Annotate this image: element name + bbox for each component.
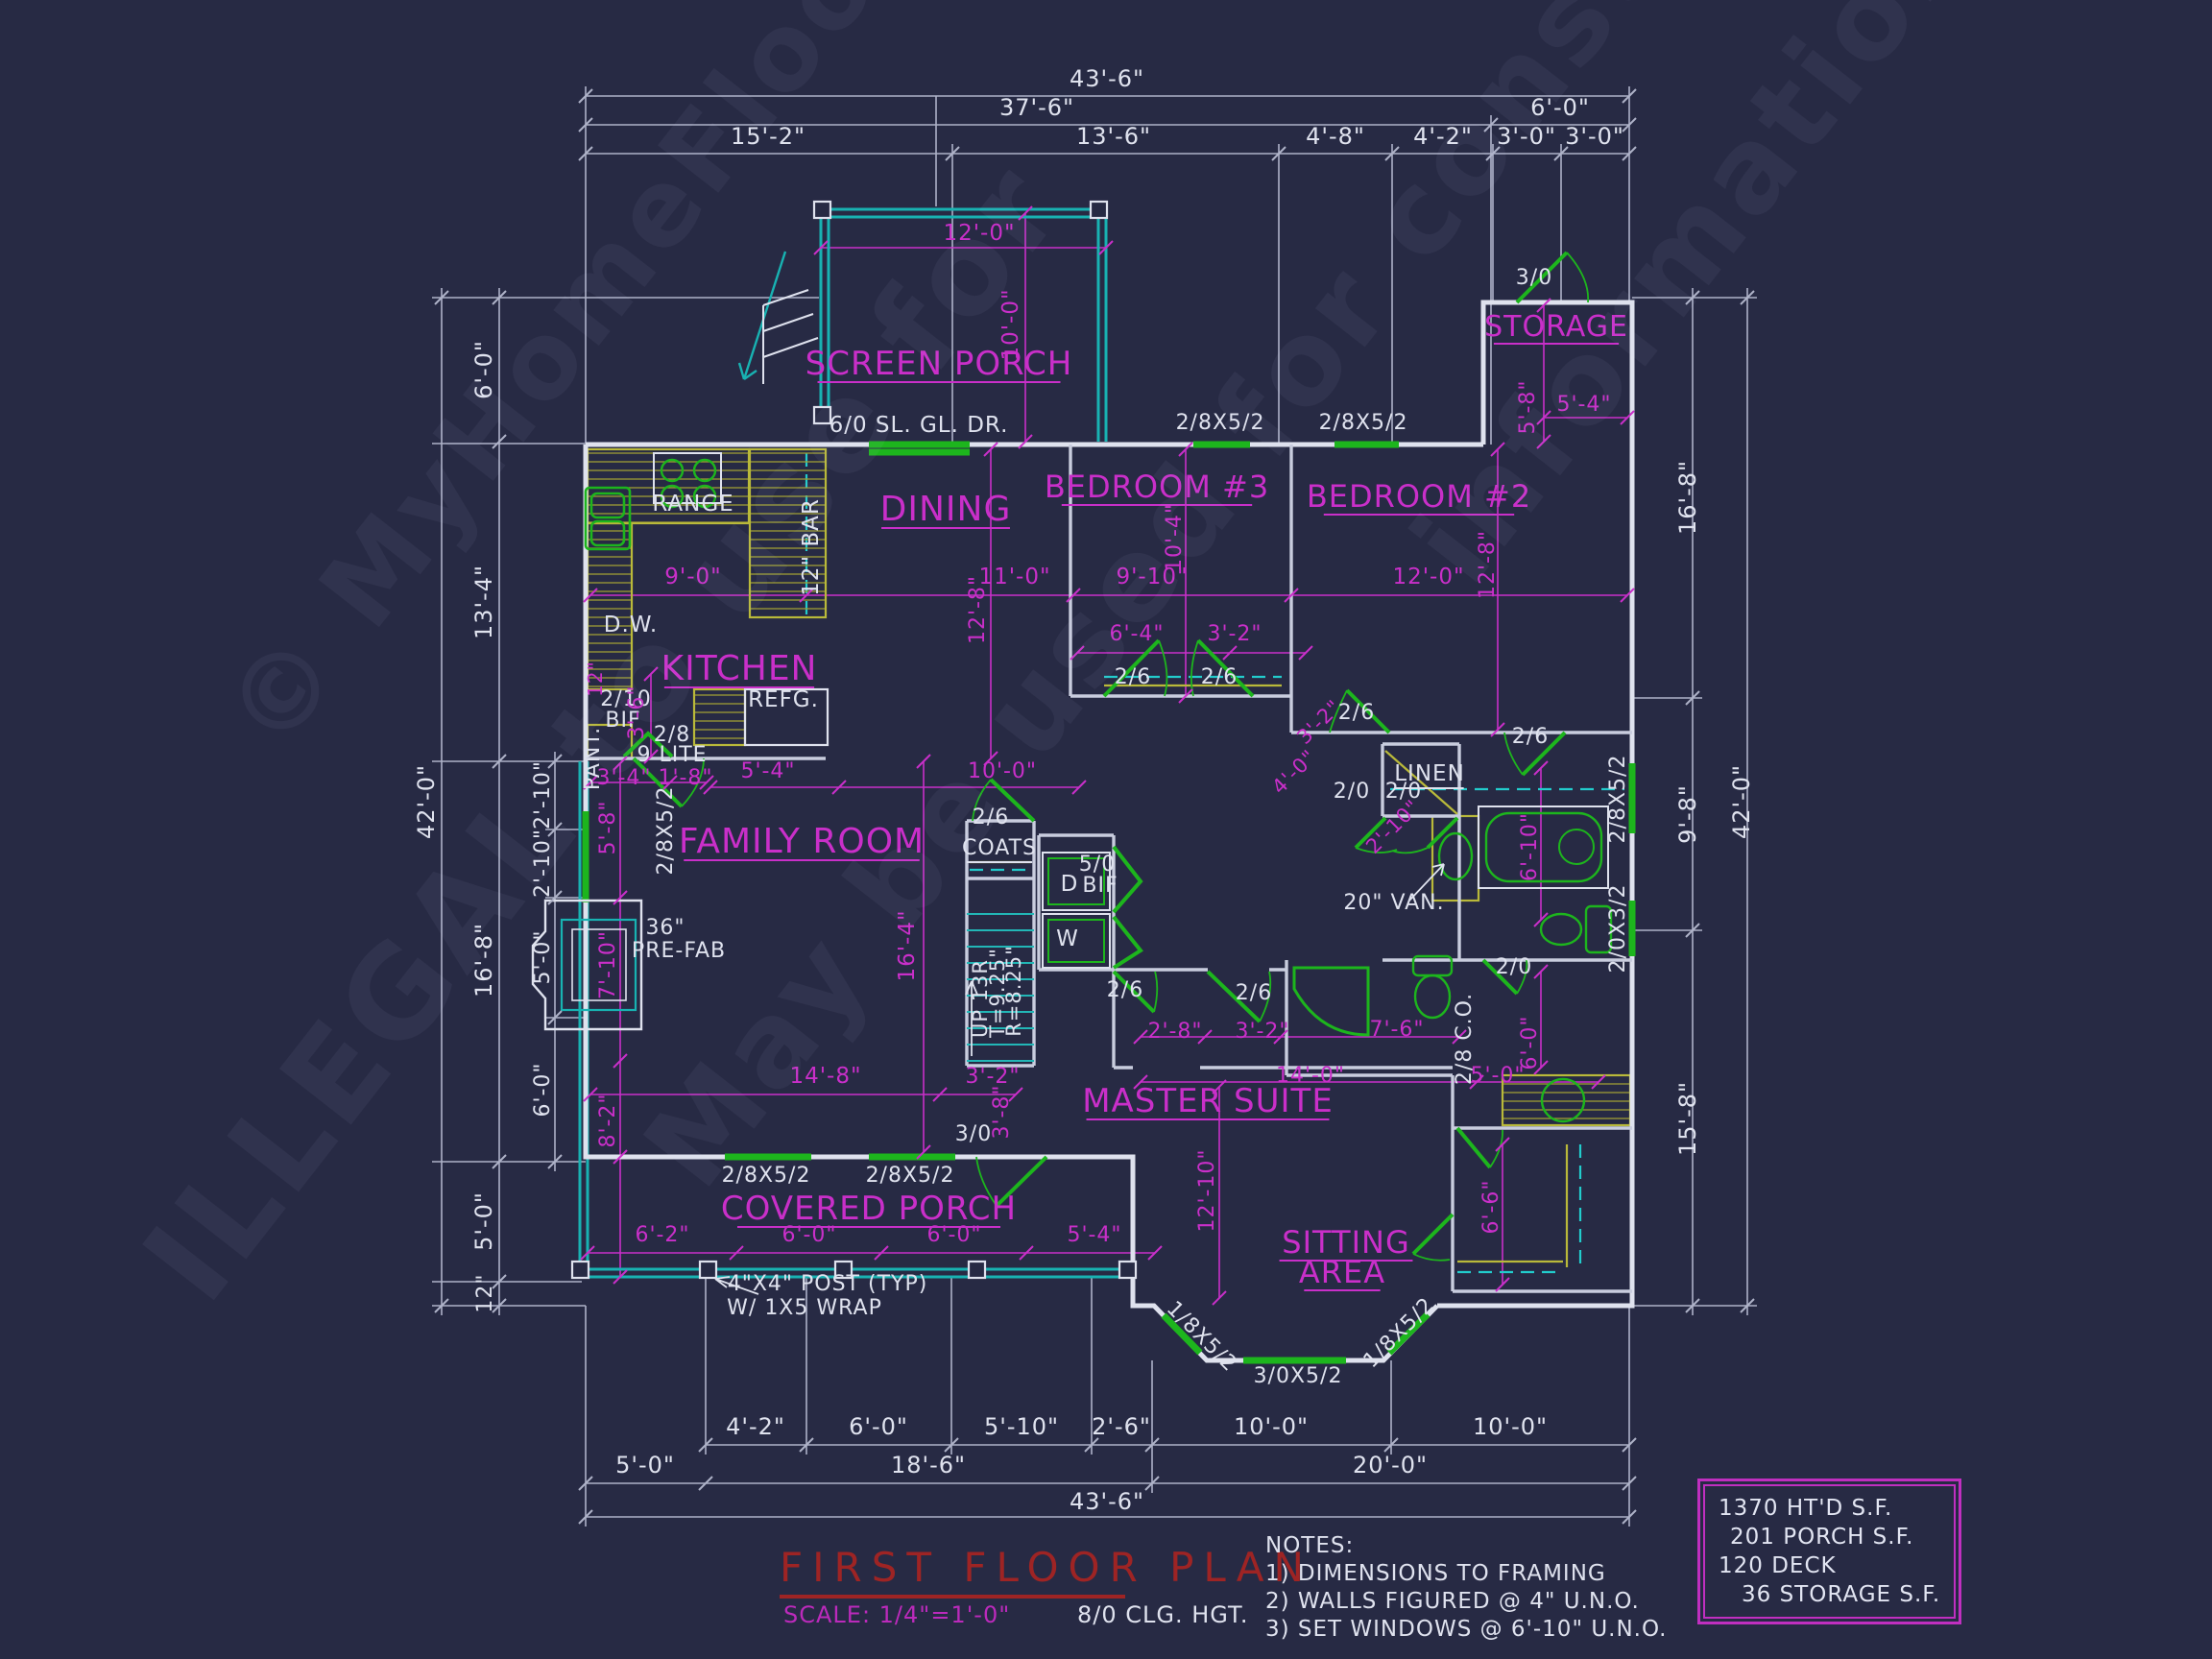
plan-label: 12" BAR xyxy=(799,498,824,596)
svg-text:5'-0": 5'-0" xyxy=(1470,1064,1525,1088)
svg-text:2/8X5/2: 2/8X5/2 xyxy=(866,1164,955,1188)
svg-text:DINING: DINING xyxy=(880,490,1012,529)
plan-label: PRE-FAB xyxy=(632,939,726,963)
svg-text:15'-2": 15'-2" xyxy=(731,123,805,150)
svg-text:42'-0": 42'-0" xyxy=(1728,764,1755,839)
plan-label: 9'-8" xyxy=(1674,784,1701,844)
svg-text:MASTER SUITE: MASTER SUITE xyxy=(1082,1082,1334,1120)
svg-text:PRE-FAB: PRE-FAB xyxy=(632,939,726,963)
plan-label: 3/0 xyxy=(955,1122,992,1146)
plan-label: 3'-8" xyxy=(990,1084,1014,1139)
plan-label: 16'-8" xyxy=(1674,460,1701,535)
plan-label: BEDROOM #2 xyxy=(1307,478,1531,515)
plan-label: 2/0X3/2 xyxy=(1606,884,1630,974)
area-line: 120 DECK xyxy=(1719,1551,1940,1580)
svg-text:6'-2": 6'-2" xyxy=(635,1223,689,1247)
svg-text:2'-6": 2'-6" xyxy=(1092,1413,1151,1440)
svg-text:12'-8": 12'-8" xyxy=(966,575,990,644)
plan-label: 12'-0" xyxy=(1392,565,1464,589)
area-line: 1370 HT'D S.F. xyxy=(1719,1494,1940,1523)
plan-label: 2'-8" xyxy=(1147,1020,1202,1044)
floor-plan-page: 43'-6"37'-6"6'-0"15'-2"13'-6"4'-8"4'-2"3… xyxy=(0,0,2212,1659)
plan-label: 5'-8" xyxy=(1516,379,1540,434)
svg-text:3'-6": 3'-6" xyxy=(625,685,649,739)
svg-text:2/8X5/2: 2/8X5/2 xyxy=(654,786,678,876)
svg-text:2/6: 2/6 xyxy=(1201,665,1238,689)
plan-label: 1/8X5/2 xyxy=(1359,1293,1439,1373)
plan-label: MASTER SUITE xyxy=(1082,1082,1334,1120)
plan-label: REFG. xyxy=(748,687,819,712)
note-item: 3) SET WINDOWS @ 6'-10" U.N.O. xyxy=(1265,1616,1667,1644)
svg-text:4'-8": 4'-8" xyxy=(1306,123,1365,150)
plan-label: 5'-10" xyxy=(984,1413,1059,1440)
svg-text:10'-0": 10'-0" xyxy=(1473,1413,1548,1440)
plan-label: 3/0X5/2 xyxy=(1254,1364,1343,1388)
svg-text:16'-8": 16'-8" xyxy=(1674,460,1701,535)
page-title: FIRST FLOOR PLAN xyxy=(780,1544,1125,1599)
plan-label: 6'-0" xyxy=(1518,1015,1542,1070)
plan-label: 5'-4" xyxy=(1556,393,1611,417)
svg-text:2/0: 2/0 xyxy=(1496,955,1532,979)
svg-text:2/0X3/2: 2/0X3/2 xyxy=(1606,884,1630,974)
plan-label: 36" xyxy=(645,916,685,940)
plan-label: 4'-2" xyxy=(1413,123,1473,150)
plan-label: 2/8X5/2 xyxy=(866,1164,955,1188)
svg-text:2/6: 2/6 xyxy=(1236,981,1272,1005)
plan-label: 3'-2" xyxy=(1207,622,1262,646)
svg-text:W: W xyxy=(1056,926,1079,951)
plan-label: COATS xyxy=(962,836,1037,862)
note-item: 1) DIMENSIONS TO FRAMING xyxy=(1265,1560,1667,1588)
plan-label: 2/6 xyxy=(1115,665,1151,689)
plan-label: 1'-8" xyxy=(658,766,712,790)
svg-text:9'-8": 9'-8" xyxy=(1674,784,1701,844)
plan-label: 2/8X5/2 xyxy=(1319,411,1408,435)
svg-text:9'-0": 9'-0" xyxy=(664,565,721,589)
plan-label: 16'-8" xyxy=(470,923,497,998)
svg-text:AREA: AREA xyxy=(1299,1254,1385,1290)
plan-label: 5'-4" xyxy=(740,759,795,783)
svg-text:2/6: 2/6 xyxy=(1115,665,1151,689)
svg-text:FAMILY ROOM: FAMILY ROOM xyxy=(679,822,925,861)
plan-label: 6'-0" xyxy=(849,1413,908,1440)
closet-rods-millwork xyxy=(970,685,1567,1267)
plan-label: 3'-0" xyxy=(1565,123,1624,150)
svg-text:1/8X5/2: 1/8X5/2 xyxy=(1359,1293,1439,1373)
plan-label: 13'-4" xyxy=(470,565,497,639)
svg-text:2'-10": 2'-10" xyxy=(531,760,555,829)
plan-label: 15'-2" xyxy=(731,123,805,150)
svg-text:D: D xyxy=(1061,872,1079,897)
svg-text:BIF: BIF xyxy=(1082,874,1118,898)
plan-label: 5'-0" xyxy=(615,1452,675,1479)
plan-label: 43'-6" xyxy=(1070,65,1144,92)
plan-label: 4'-2" xyxy=(726,1413,785,1440)
svg-text:20'-0": 20'-0" xyxy=(1353,1452,1428,1479)
svg-text:43'-6": 43'-6" xyxy=(1070,1488,1144,1515)
plan-label: 1/8X5/2 xyxy=(1162,1297,1241,1377)
plan-label: 5'-0" xyxy=(1470,1064,1525,1088)
plan-label: 15'-8" xyxy=(1674,1081,1701,1156)
svg-text:3'-2": 3'-2" xyxy=(1235,1020,1289,1044)
svg-text:3'-8": 3'-8" xyxy=(990,1084,1014,1139)
plan-label: 18'-6" xyxy=(891,1452,966,1479)
plan-label: 6'-4" xyxy=(1109,622,1164,646)
svg-text:12": 12" xyxy=(473,1273,497,1312)
svg-text:10'-0": 10'-0" xyxy=(1234,1413,1309,1440)
ceiling-height-note: 8/0 CLG. HGT. xyxy=(1077,1601,1248,1628)
plan-label: 2/0 xyxy=(1334,780,1370,804)
svg-text:2/8X5/2: 2/8X5/2 xyxy=(1319,411,1408,435)
notes-block: NOTES: 1) DIMENSIONS TO FRAMING 2) WALLS… xyxy=(1265,1532,1667,1644)
plan-label: 2/0 xyxy=(1496,955,1532,979)
plan-label: 10'-4" xyxy=(1163,503,1187,572)
svg-text:6'-6": 6'-6" xyxy=(1479,1179,1503,1234)
svg-text:2/0: 2/0 xyxy=(1334,780,1370,804)
svg-text:R=8.25": R=8.25" xyxy=(1002,945,1025,1037)
plan-label: 2/8X5/2 xyxy=(654,786,678,876)
svg-text:3'-0": 3'-0" xyxy=(1497,123,1556,150)
plan-label: D xyxy=(1061,872,1079,897)
svg-text:RANGE: RANGE xyxy=(652,492,733,517)
svg-text:12'-0": 12'-0" xyxy=(943,221,1015,246)
plan-label: 3'-4" xyxy=(596,766,651,790)
svg-text:4'-2": 4'-2" xyxy=(1413,123,1473,150)
svg-text:37'-6": 37'-6" xyxy=(999,94,1074,121)
svg-text:5'-4": 5'-4" xyxy=(1556,393,1611,417)
plan-label: 6'-0" xyxy=(531,1062,555,1117)
plan-label: 42'-0" xyxy=(413,764,440,839)
plan-label: 2'-6" xyxy=(1092,1413,1151,1440)
svg-text:2/8X5/2: 2/8X5/2 xyxy=(1606,755,1630,844)
plan-label: 20" VAN. xyxy=(1343,891,1444,915)
svg-text:20" VAN.: 20" VAN. xyxy=(1343,891,1444,915)
svg-text:8'-2": 8'-2" xyxy=(596,1093,620,1147)
plan-label: KITCHEN xyxy=(661,649,818,688)
svg-text:4"X4" POST (TYP): 4"X4" POST (TYP) xyxy=(728,1272,928,1296)
svg-text:COVERED PORCH: COVERED PORCH xyxy=(721,1190,1017,1228)
plan-label: 37'-6" xyxy=(999,94,1074,121)
plan-label: 8'-2" xyxy=(596,1093,620,1147)
plan-label: 13'-6" xyxy=(1076,123,1151,150)
plan-label: 6'-2" xyxy=(635,1223,689,1247)
plan-label: 20'-0" xyxy=(1353,1452,1428,1479)
svg-text:STORAGE: STORAGE xyxy=(1484,310,1628,344)
svg-text:12'-10": 12'-10" xyxy=(1195,1148,1219,1232)
plan-label: DINING xyxy=(880,490,1012,529)
svg-text:2'-10": 2'-10" xyxy=(531,829,555,898)
plan-label: RANGE xyxy=(652,492,733,517)
plan-label: 10'-0" xyxy=(968,759,1037,783)
bathtub xyxy=(1479,806,1608,888)
svg-text:16'-4": 16'-4" xyxy=(895,909,920,981)
plan-label: 9'-0" xyxy=(664,565,721,589)
plan-label: 12" xyxy=(473,1273,497,1312)
svg-text:2/6: 2/6 xyxy=(1512,725,1549,749)
plan-label: STORAGE xyxy=(1484,310,1628,344)
svg-text:3'-2": 3'-2" xyxy=(1207,622,1262,646)
svg-text:5'-8": 5'-8" xyxy=(596,800,620,854)
svg-text:LINEN: LINEN xyxy=(1394,761,1465,786)
svg-text:12'-0": 12'-0" xyxy=(1392,565,1464,589)
plan-label: R=8.25" xyxy=(1002,945,1025,1037)
svg-text:42'-0": 42'-0" xyxy=(413,764,440,839)
svg-text:10'-4": 10'-4" xyxy=(1163,503,1187,572)
svg-text:12": 12" xyxy=(584,661,607,697)
svg-text:6'-10": 6'-10" xyxy=(1518,812,1542,881)
area-line: 36 STORAGE S.F. xyxy=(1719,1580,1940,1609)
svg-text:REFG.: REFG. xyxy=(748,687,819,712)
svg-text:2'-8": 2'-8" xyxy=(1147,1020,1202,1044)
svg-text:5'-8": 5'-8" xyxy=(1516,379,1540,434)
plan-label: 3'-0" xyxy=(1497,123,1556,150)
svg-text:3'-0": 3'-0" xyxy=(1565,123,1624,150)
note-item: 2) WALLS FIGURED @ 4" U.N.O. xyxy=(1265,1588,1667,1616)
plan-label: 4"X4" POST (TYP) xyxy=(728,1272,928,1296)
svg-text:15'-8": 15'-8" xyxy=(1674,1081,1701,1156)
plan-label: 43'-6" xyxy=(1070,1488,1144,1515)
plan-label: 16'-4" xyxy=(895,909,920,981)
plan-label: AREA xyxy=(1299,1254,1385,1290)
plan-label: 14'-8" xyxy=(789,1064,861,1089)
svg-text:2/8X5/2: 2/8X5/2 xyxy=(1176,411,1265,435)
svg-text:1/8X5/2: 1/8X5/2 xyxy=(1162,1297,1241,1377)
svg-text:3/0: 3/0 xyxy=(1516,266,1552,290)
plan-label: 2'-10" xyxy=(531,760,555,829)
svg-text:6'-0": 6'-0" xyxy=(1530,94,1590,121)
svg-text:4'-2": 4'-2" xyxy=(726,1413,785,1440)
plan-label: 12" xyxy=(584,661,607,697)
plan-label: 2/6 xyxy=(1236,981,1272,1005)
area-summary-box: 1370 HT'D S.F. 201 PORCH S.F. 120 DECK 3… xyxy=(1697,1479,1961,1624)
plan-label: 10'-0" xyxy=(1234,1413,1309,1440)
plan-label: 2/8X5/2 xyxy=(722,1164,811,1188)
plan-label: 42'-0" xyxy=(1728,764,1755,839)
plan-label: 6'-10" xyxy=(1518,812,1542,881)
svg-text:KITCHEN: KITCHEN xyxy=(661,649,818,688)
plan-label: 10'-0" xyxy=(1473,1413,1548,1440)
svg-text:BEDROOM #3: BEDROOM #3 xyxy=(1045,469,1269,505)
plan-label: 2/6 xyxy=(973,805,1009,829)
plan-label: 2/8X5/2 xyxy=(1176,411,1265,435)
svg-text:4'-0": 4'-0" xyxy=(1267,745,1321,799)
plan-label: 6/0 SL. GL. DR. xyxy=(829,413,1009,438)
plan-label: BEDROOM #3 xyxy=(1045,469,1269,505)
svg-text:2/6: 2/6 xyxy=(973,805,1009,829)
plan-label: 5'-0" xyxy=(470,1191,497,1251)
plan-label: 9 LITE xyxy=(637,743,707,767)
svg-text:6'-4": 6'-4" xyxy=(1109,622,1164,646)
svg-text:5'-10": 5'-10" xyxy=(984,1413,1059,1440)
svg-text:5'-0": 5'-0" xyxy=(531,929,555,984)
plan-label: 7'-10" xyxy=(596,930,620,999)
svg-text:6/0 SL. GL. DR.: 6/0 SL. GL. DR. xyxy=(829,413,1009,438)
svg-text:2'-10": 2'-10" xyxy=(1361,795,1425,858)
title-block: FIRST FLOOR PLAN xyxy=(780,1544,1125,1599)
svg-text:7'-6": 7'-6" xyxy=(1369,1018,1424,1042)
svg-text:12'-8": 12'-8" xyxy=(1476,530,1500,599)
plan-label: 2/6 xyxy=(1107,978,1143,1002)
svg-text:BEDROOM #2: BEDROOM #2 xyxy=(1307,478,1531,515)
plan-label: 3'-6" xyxy=(625,685,649,739)
svg-text:6'-0": 6'-0" xyxy=(470,340,497,399)
svg-text:13'-6": 13'-6" xyxy=(1076,123,1151,150)
plan-label: 3'-2" xyxy=(1235,1020,1289,1044)
svg-text:36": 36" xyxy=(645,916,685,940)
plan-label: 6'-0" xyxy=(1530,94,1590,121)
plan-label: 6'-0" xyxy=(470,340,497,399)
svg-text:43'-6": 43'-6" xyxy=(1070,65,1144,92)
plan-label: 3/0 xyxy=(1516,266,1552,290)
plan-label: 12'-8" xyxy=(966,575,990,644)
plan-label: 12'-10" xyxy=(1195,1148,1219,1232)
plan-label: COVERED PORCH xyxy=(721,1190,1017,1228)
svg-text:5'-0": 5'-0" xyxy=(615,1452,675,1479)
plan-label: SCREEN PORCH xyxy=(805,345,1073,383)
floor-plan-drawing: 43'-6"37'-6"6'-0"15'-2"13'-6"4'-8"4'-2"3… xyxy=(0,0,2212,1659)
svg-text:W/ 1X5 WRAP: W/ 1X5 WRAP xyxy=(727,1296,882,1320)
svg-text:18'-6": 18'-6" xyxy=(891,1452,966,1479)
plan-label: 2'-10" xyxy=(531,829,555,898)
svg-text:7'-10": 7'-10" xyxy=(596,930,620,999)
area-line: 201 PORCH S.F. xyxy=(1719,1523,1940,1551)
svg-text:6'-0": 6'-0" xyxy=(1518,1015,1542,1070)
svg-text:5'-4": 5'-4" xyxy=(740,759,795,783)
svg-text:3/0X5/2: 3/0X5/2 xyxy=(1254,1364,1343,1388)
plan-label: 2'-10" xyxy=(1361,795,1425,858)
plan-label: BIF xyxy=(1082,874,1118,898)
svg-text:COATS: COATS xyxy=(962,836,1037,860)
plan-label: 4'-0" xyxy=(1267,745,1321,799)
plan-label: 5'-8" xyxy=(596,800,620,854)
plan-label: D.W. xyxy=(604,613,658,637)
plan-label: 2/6 xyxy=(1512,725,1549,749)
svg-text:6'-0": 6'-0" xyxy=(849,1413,908,1440)
plan-labels: 43'-6"37'-6"6'-0"15'-2"13'-6"4'-8"4'-2"3… xyxy=(413,65,1755,1515)
plan-label: 2/6 xyxy=(1201,665,1238,689)
plan-label: 12'-0" xyxy=(943,221,1015,246)
plan-label: 12'-8" xyxy=(1476,530,1500,599)
svg-text:5'-0": 5'-0" xyxy=(470,1191,497,1251)
svg-text:3'-4": 3'-4" xyxy=(596,766,651,790)
plan-label: W xyxy=(1056,926,1079,951)
plan-label: 7'-6" xyxy=(1369,1018,1424,1042)
plan-label: 2/8X5/2 xyxy=(1606,755,1630,844)
svg-text:2/8X5/2: 2/8X5/2 xyxy=(722,1164,811,1188)
svg-text:13'-4": 13'-4" xyxy=(470,565,497,639)
notes-heading: NOTES: xyxy=(1265,1532,1667,1560)
plan-label: 5'-0" xyxy=(531,929,555,984)
plan-label: 6'-6" xyxy=(1479,1179,1503,1234)
svg-text:6'-0": 6'-0" xyxy=(531,1062,555,1117)
svg-text:9 LITE: 9 LITE xyxy=(637,743,707,767)
plan-label: W/ 1X5 WRAP xyxy=(727,1296,882,1320)
svg-text:10'-0": 10'-0" xyxy=(968,759,1037,783)
scale-note: SCALE: 1/4"=1'-0" xyxy=(783,1601,1010,1628)
svg-text:16'-8": 16'-8" xyxy=(470,923,497,998)
svg-text:3/0: 3/0 xyxy=(955,1122,992,1146)
plan-label: 4'-8" xyxy=(1306,123,1365,150)
svg-text:5'-4": 5'-4" xyxy=(1067,1223,1121,1247)
plan-label: LINEN xyxy=(1394,761,1465,788)
svg-text:SCREEN PORCH: SCREEN PORCH xyxy=(805,345,1073,383)
svg-text:14'-8": 14'-8" xyxy=(789,1064,861,1089)
svg-text:D.W.: D.W. xyxy=(604,613,658,637)
svg-text:12" BAR: 12" BAR xyxy=(799,498,824,596)
svg-text:1'-8": 1'-8" xyxy=(658,766,712,790)
shower xyxy=(1294,968,1368,1035)
svg-text:2/6: 2/6 xyxy=(1107,978,1143,1002)
plan-label: FAMILY ROOM xyxy=(679,822,925,861)
plan-label: 5'-4" xyxy=(1067,1223,1121,1247)
